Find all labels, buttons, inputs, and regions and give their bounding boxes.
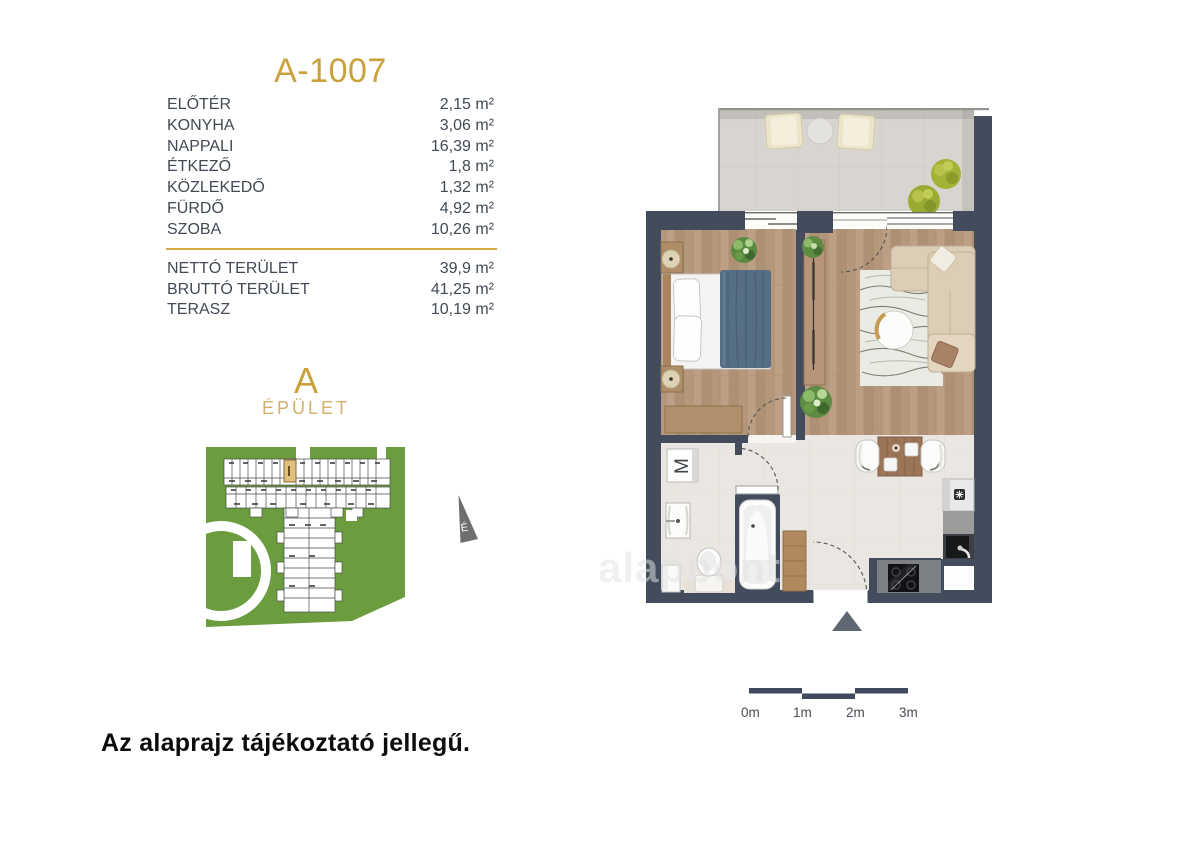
svg-text:alappont: alappont xyxy=(600,544,781,591)
svg-text:0m: 0m xyxy=(741,705,760,720)
svg-text:3m: 3m xyxy=(899,705,918,720)
svg-text:1m: 1m xyxy=(793,705,812,720)
svg-text:M: M xyxy=(672,458,693,474)
svg-text:2m: 2m xyxy=(846,705,865,720)
